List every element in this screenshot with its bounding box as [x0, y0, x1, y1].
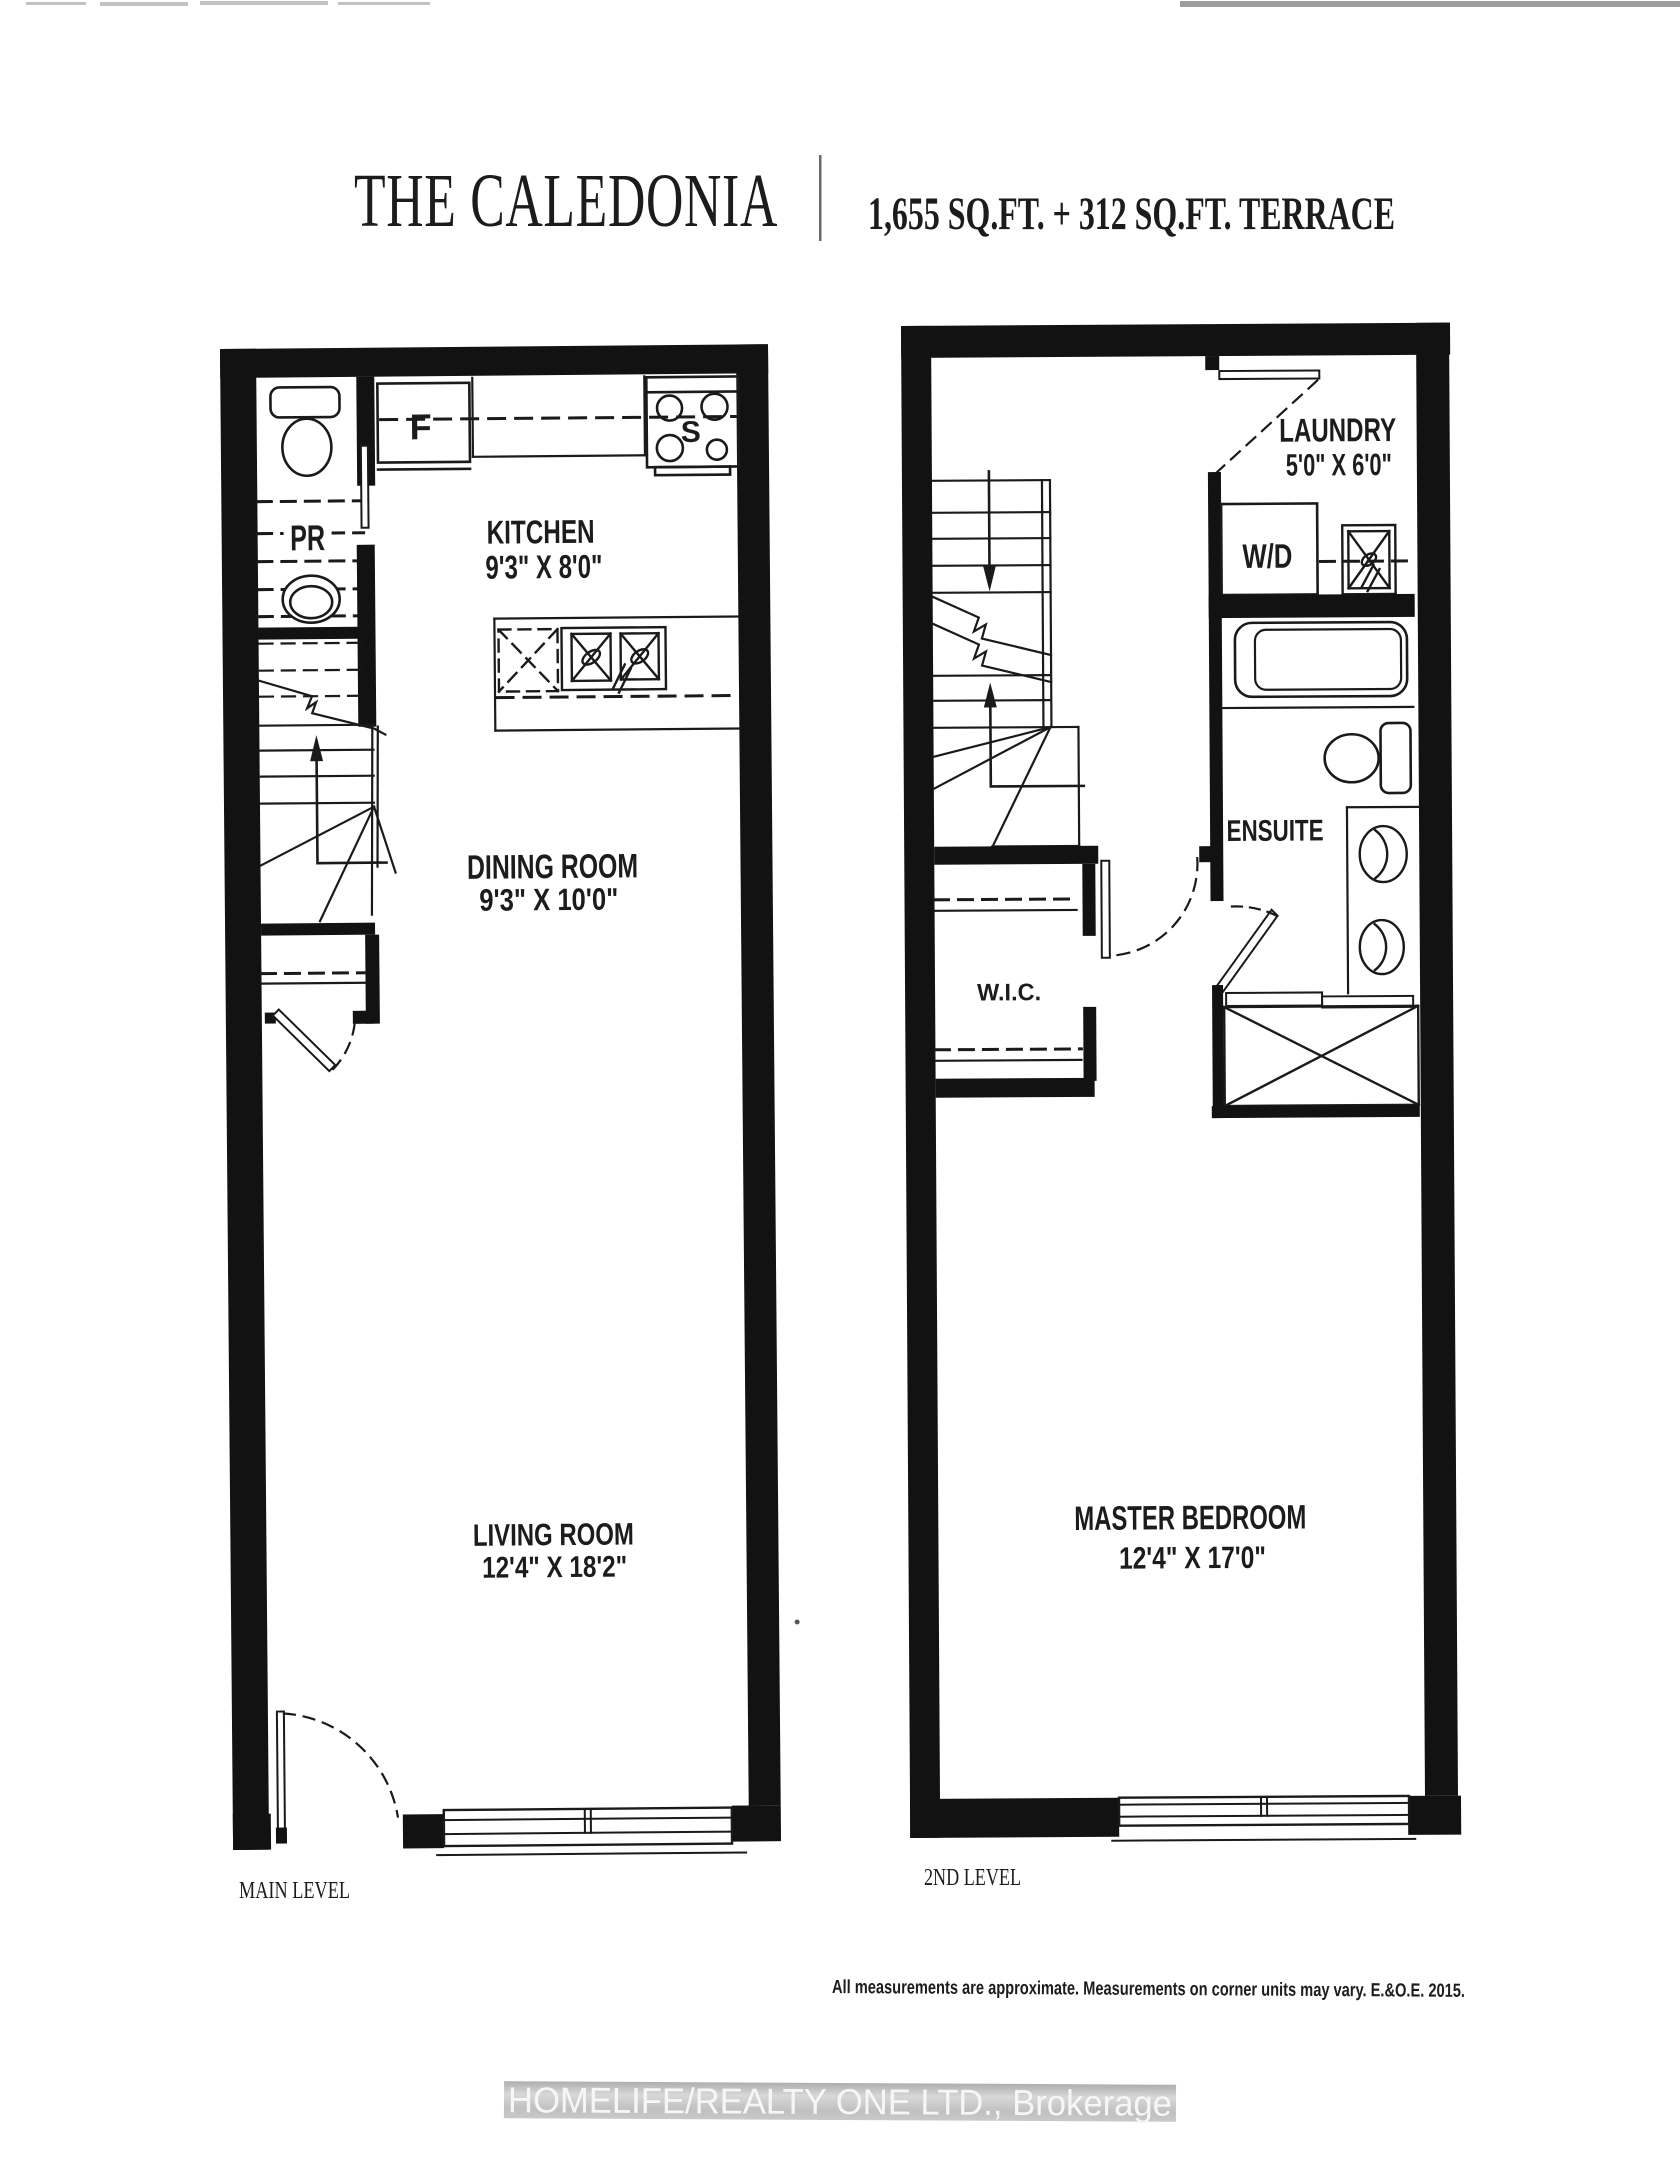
svg-text:W.I.C.: W.I.C. [977, 979, 1041, 1006]
svg-text:MASTER BEDROOM: MASTER BEDROOM [1074, 1499, 1306, 1538]
svg-text:12'4" X 17'0": 12'4" X 17'0" [1119, 1540, 1266, 1576]
svg-text:All measurements are approxima: All measurements are approximate. Measur… [832, 1977, 1465, 2002]
svg-text:5'0" X 6'0": 5'0" X 6'0" [1286, 447, 1392, 483]
svg-text:PR: PR [290, 517, 325, 558]
svg-text:9'3" X 10'0": 9'3" X 10'0" [479, 882, 618, 918]
svg-text:1,655 SQ.FT. + 312 SQ.FT. TERR: 1,655 SQ.FT. + 312 SQ.FT. TERRACE [868, 188, 1395, 240]
svg-text:ENSUITE: ENSUITE [1226, 814, 1323, 848]
svg-text:MAIN LEVEL: MAIN LEVEL [239, 1878, 350, 1904]
svg-text:S: S [681, 416, 701, 449]
svg-text:HOMELIFE/REALTY ONE LTD., Brok: HOMELIFE/REALTY ONE LTD., Brokerage [508, 2079, 1172, 2123]
svg-text:9'3" X 8'0": 9'3" X 8'0" [485, 548, 602, 586]
svg-text:THE CALEDONIA: THE CALEDONIA [354, 159, 778, 243]
svg-text:LIVING ROOM: LIVING ROOM [473, 1516, 634, 1552]
svg-text:2ND LEVEL: 2ND LEVEL [924, 1865, 1021, 1891]
svg-text:LAUNDRY: LAUNDRY [1279, 411, 1396, 449]
svg-text:KITCHEN: KITCHEN [486, 513, 594, 551]
svg-text:F: F [410, 406, 432, 447]
svg-text:12'4" X 18'2": 12'4" X 18'2" [482, 1550, 627, 1584]
svg-text:W/D: W/D [1242, 538, 1292, 576]
